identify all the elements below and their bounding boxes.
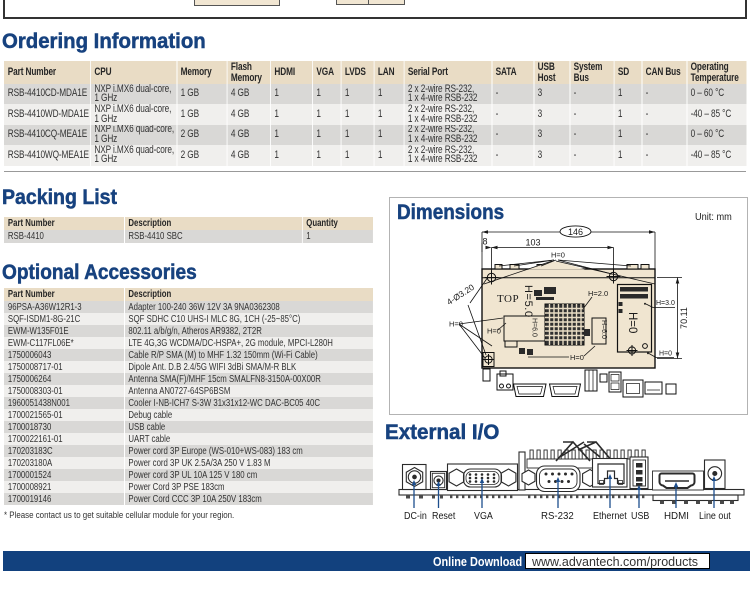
svg-text:H=0: H=0 [551,251,565,260]
svg-text:H=6.0: H=6.0 [600,320,607,339]
svg-text:H=0: H=0 [659,351,672,358]
svg-text:4-Ø3.20: 4-Ø3.20 [445,282,476,307]
svg-text:H=0: H=0 [626,312,638,333]
svg-text:H=6.0: H=6.0 [531,318,538,337]
svg-text:H=0: H=0 [449,320,463,329]
svg-text:70.11: 70.11 [679,307,689,329]
svg-text:H=0: H=0 [487,327,501,336]
svg-text:H=2.0: H=2.0 [588,289,608,298]
svg-text:H=5.0: H=5.0 [522,285,534,318]
svg-text:H=3.0: H=3.0 [656,300,675,307]
svg-text:103: 103 [525,238,540,248]
svg-text:8: 8 [482,237,487,247]
svg-text:H=0: H=0 [570,353,584,362]
svg-text:TOP: TOP [497,293,519,305]
svg-text:146: 146 [568,227,583,237]
